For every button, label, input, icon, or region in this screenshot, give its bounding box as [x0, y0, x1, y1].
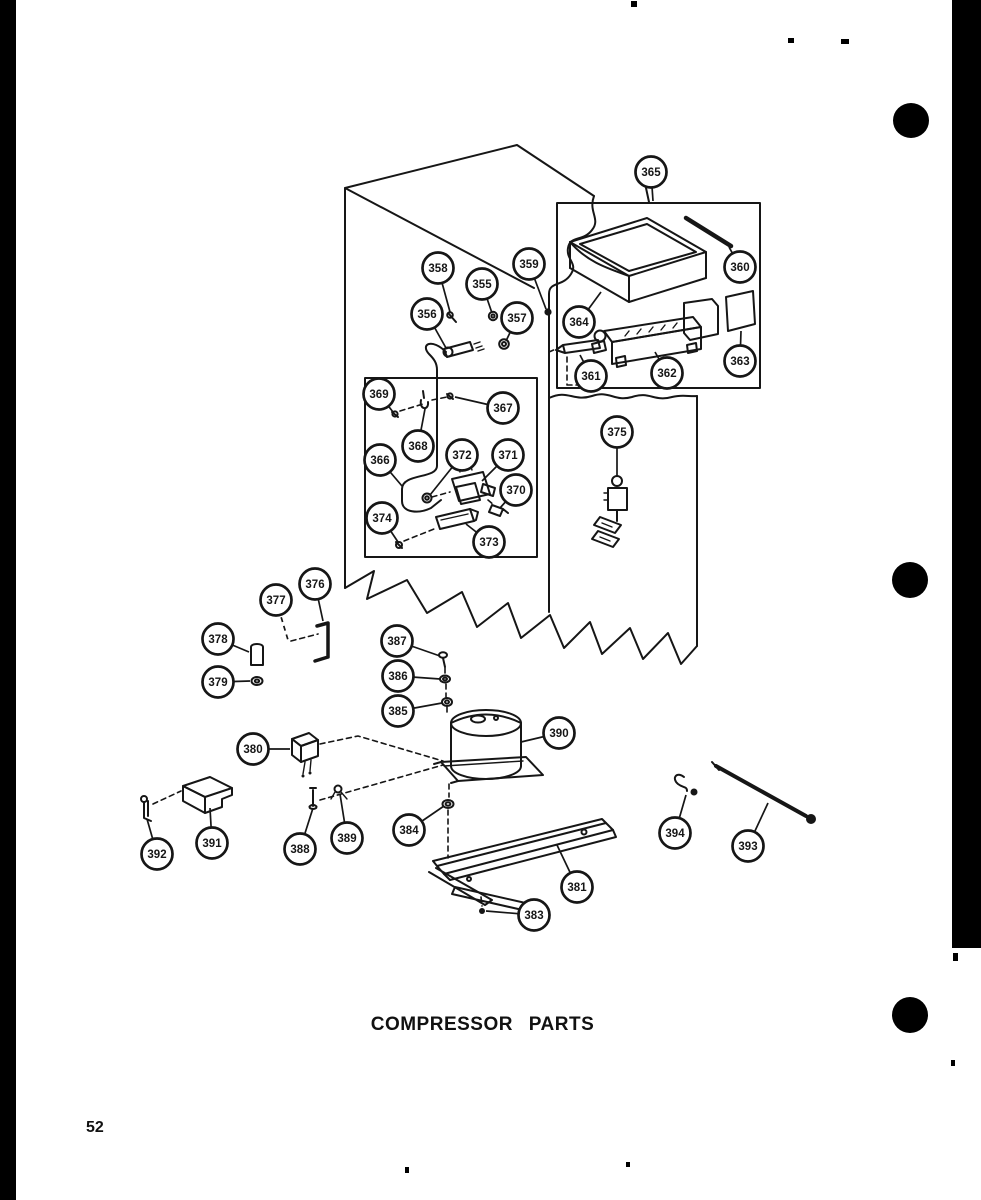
- callout-364: 364: [564, 292, 602, 338]
- svg-text:385: 385: [388, 706, 408, 718]
- callout-394: 394: [660, 795, 691, 849]
- callout-388: 388: [285, 808, 316, 865]
- svg-text:376: 376: [305, 579, 324, 591]
- svg-text:394: 394: [665, 828, 685, 840]
- svg-text:356: 356: [417, 309, 436, 321]
- callout-389: 389: [332, 794, 363, 854]
- svg-text:388: 388: [290, 844, 310, 856]
- svg-text:384: 384: [399, 825, 419, 837]
- callout-379: 379: [203, 667, 251, 698]
- callout-381: 381: [557, 845, 593, 903]
- svg-text:361: 361: [581, 371, 601, 383]
- drain-strap-rod: [712, 762, 816, 824]
- callout-374: 374: [367, 503, 399, 543]
- callout-377: 377: [261, 585, 292, 641]
- svg-text:362: 362: [657, 368, 676, 380]
- svg-text:393: 393: [738, 841, 757, 853]
- terminal-cover-box: [183, 777, 232, 813]
- svg-text:372: 372: [452, 450, 471, 462]
- mounting-plate: [726, 291, 755, 331]
- callout-361: 361: [576, 355, 607, 392]
- cabinet-outline: [345, 145, 697, 664]
- callout-387: 387: [382, 626, 441, 657]
- callout-370: 370: [500, 475, 532, 509]
- callout-layer: 3553563573583593603613623633643653663673…: [142, 157, 769, 931]
- ice-maker-wire-rod: [686, 218, 731, 246]
- svg-text:368: 368: [408, 441, 428, 453]
- cover-retainer-clip: [141, 791, 181, 821]
- svg-text:378: 378: [208, 634, 228, 646]
- callout-369: 369: [364, 379, 395, 413]
- mounting-stud-and-clip: [310, 765, 444, 809]
- svg-text:367: 367: [493, 403, 512, 415]
- ice-maker-unit: [592, 299, 718, 367]
- callout-378: 378: [203, 624, 250, 655]
- svg-text:374: 374: [372, 513, 392, 525]
- svg-text:380: 380: [243, 744, 262, 756]
- callout-355: 355: [467, 269, 498, 314]
- svg-text:360: 360: [730, 262, 749, 274]
- callout-356: 356: [412, 299, 447, 349]
- svg-text:358: 358: [428, 263, 448, 275]
- compressor-mounting-hardware: [439, 652, 452, 714]
- compressor: [434, 710, 543, 783]
- figure-title: COMPRESSOR PARTS: [330, 1014, 635, 1036]
- callout-363: 363: [725, 331, 756, 377]
- callout-367: 367: [455, 393, 519, 424]
- tube-hook-clip: [675, 775, 698, 796]
- callout-375: 375: [602, 417, 633, 478]
- standoff-and-grommet: [251, 644, 263, 685]
- callout-392: 392: [142, 819, 173, 870]
- svg-text:363: 363: [730, 356, 749, 368]
- cabinet-screws-grommets: [447, 308, 551, 348]
- svg-text:364: 364: [569, 317, 589, 329]
- tube-clamp-screws: [392, 391, 453, 417]
- water-inlet-tube-assembly: [402, 342, 484, 512]
- svg-text:386: 386: [388, 671, 407, 683]
- svg-text:370: 370: [506, 485, 525, 497]
- svg-text:369: 369: [369, 389, 388, 401]
- svg-text:373: 373: [479, 537, 498, 549]
- svg-text:375: 375: [607, 427, 627, 439]
- callout-393: 393: [733, 803, 769, 862]
- callout-368: 368: [403, 409, 434, 462]
- callout-376: 376: [300, 569, 331, 622]
- callout-360: 360: [725, 247, 756, 283]
- callout-385: 385: [383, 696, 443, 727]
- svg-text:391: 391: [202, 838, 222, 850]
- solenoid-valve-part: [592, 476, 627, 547]
- manual-page: 3553563573583593603613623633643653663673…: [0, 0, 981, 1200]
- svg-text:371: 371: [498, 450, 518, 462]
- svg-text:392: 392: [147, 849, 166, 861]
- svg-text:377: 377: [266, 595, 285, 607]
- page-number: 52: [86, 1119, 104, 1137]
- svg-text:381: 381: [567, 882, 587, 894]
- svg-text:366: 366: [370, 455, 389, 467]
- callout-365: 365: [636, 157, 667, 202]
- svg-text:387: 387: [387, 636, 406, 648]
- svg-text:365: 365: [641, 167, 661, 179]
- valve-bracket: [396, 509, 478, 548]
- svg-text:379: 379: [208, 677, 227, 689]
- callout-390: 390: [521, 718, 575, 749]
- water-valve-assembly: [423, 464, 509, 516]
- svg-text:359: 359: [519, 259, 538, 271]
- callout-373: 373: [466, 524, 505, 558]
- svg-text:355: 355: [472, 279, 492, 291]
- callout-357: 357: [502, 303, 533, 342]
- callout-384: 384: [394, 806, 445, 846]
- svg-text:390: 390: [549, 728, 568, 740]
- support-bracket: [291, 623, 328, 661]
- svg-text:383: 383: [524, 910, 543, 922]
- svg-text:357: 357: [507, 313, 526, 325]
- callout-386: 386: [383, 661, 441, 692]
- compressor-grommet: [443, 784, 454, 858]
- svg-text:389: 389: [337, 833, 356, 845]
- callout-380: 380: [238, 734, 291, 765]
- callout-391: 391: [197, 808, 228, 859]
- callout-366: 366: [365, 445, 403, 487]
